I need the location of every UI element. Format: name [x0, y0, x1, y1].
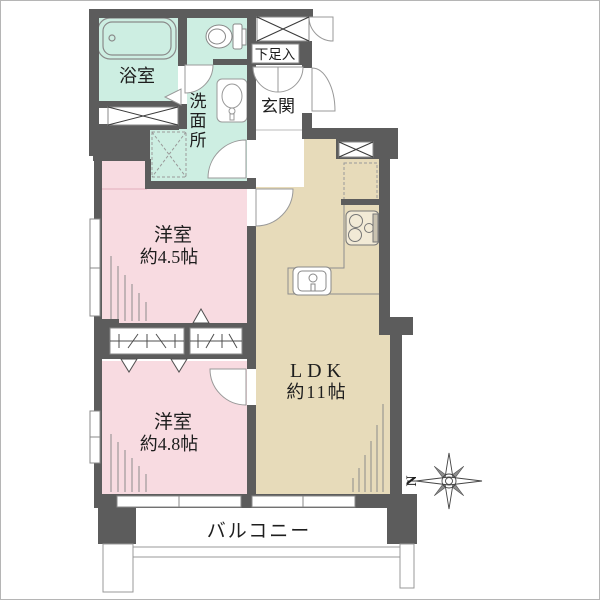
washroom-label: 洗面所	[190, 92, 207, 150]
meter-box-door-swing	[309, 17, 333, 41]
balcony-pillar-left	[98, 504, 136, 544]
balcony-railing	[117, 547, 413, 557]
balcony-label: バルコニー	[207, 521, 312, 542]
entrance-label: 玄関	[261, 97, 295, 116]
bedroom1-alcove-floor	[101, 159, 147, 191]
compass-north-label: N	[404, 475, 420, 486]
balcony-structure	[103, 544, 414, 592]
kitchen-stove	[346, 211, 379, 245]
bedroom1-size: 約4.5帖	[140, 247, 199, 267]
ldk-size: 約11帖	[286, 382, 347, 402]
toilet	[206, 24, 246, 49]
balcony-support-right	[400, 544, 414, 588]
entrance-door-swing	[312, 68, 335, 111]
floorplan-svg: 浴室 洗面所 下足入 玄関 洋室 約4.5帖 洋室 約4.8帖 LDK 約11帖…	[1, 1, 600, 600]
balcony-pillar-right	[387, 504, 417, 544]
kitchen-sink	[293, 267, 331, 295]
bathroom-label: 浴室	[119, 66, 155, 86]
bedroom2-label: 洋室	[154, 411, 192, 433]
bedroom2-size: 約4.8帖	[140, 434, 199, 454]
ldk-label: LDK	[290, 360, 346, 382]
bedroom1-label: 洋室	[154, 224, 192, 246]
balcony-support-left	[103, 544, 133, 592]
washbasin	[217, 79, 247, 122]
shoe-storage-label: 下足入	[255, 47, 296, 62]
floorplan-page: 浴室 洗面所 下足入 玄関 洋室 約4.5帖 洋室 約4.8帖 LDK 約11帖…	[0, 0, 600, 600]
